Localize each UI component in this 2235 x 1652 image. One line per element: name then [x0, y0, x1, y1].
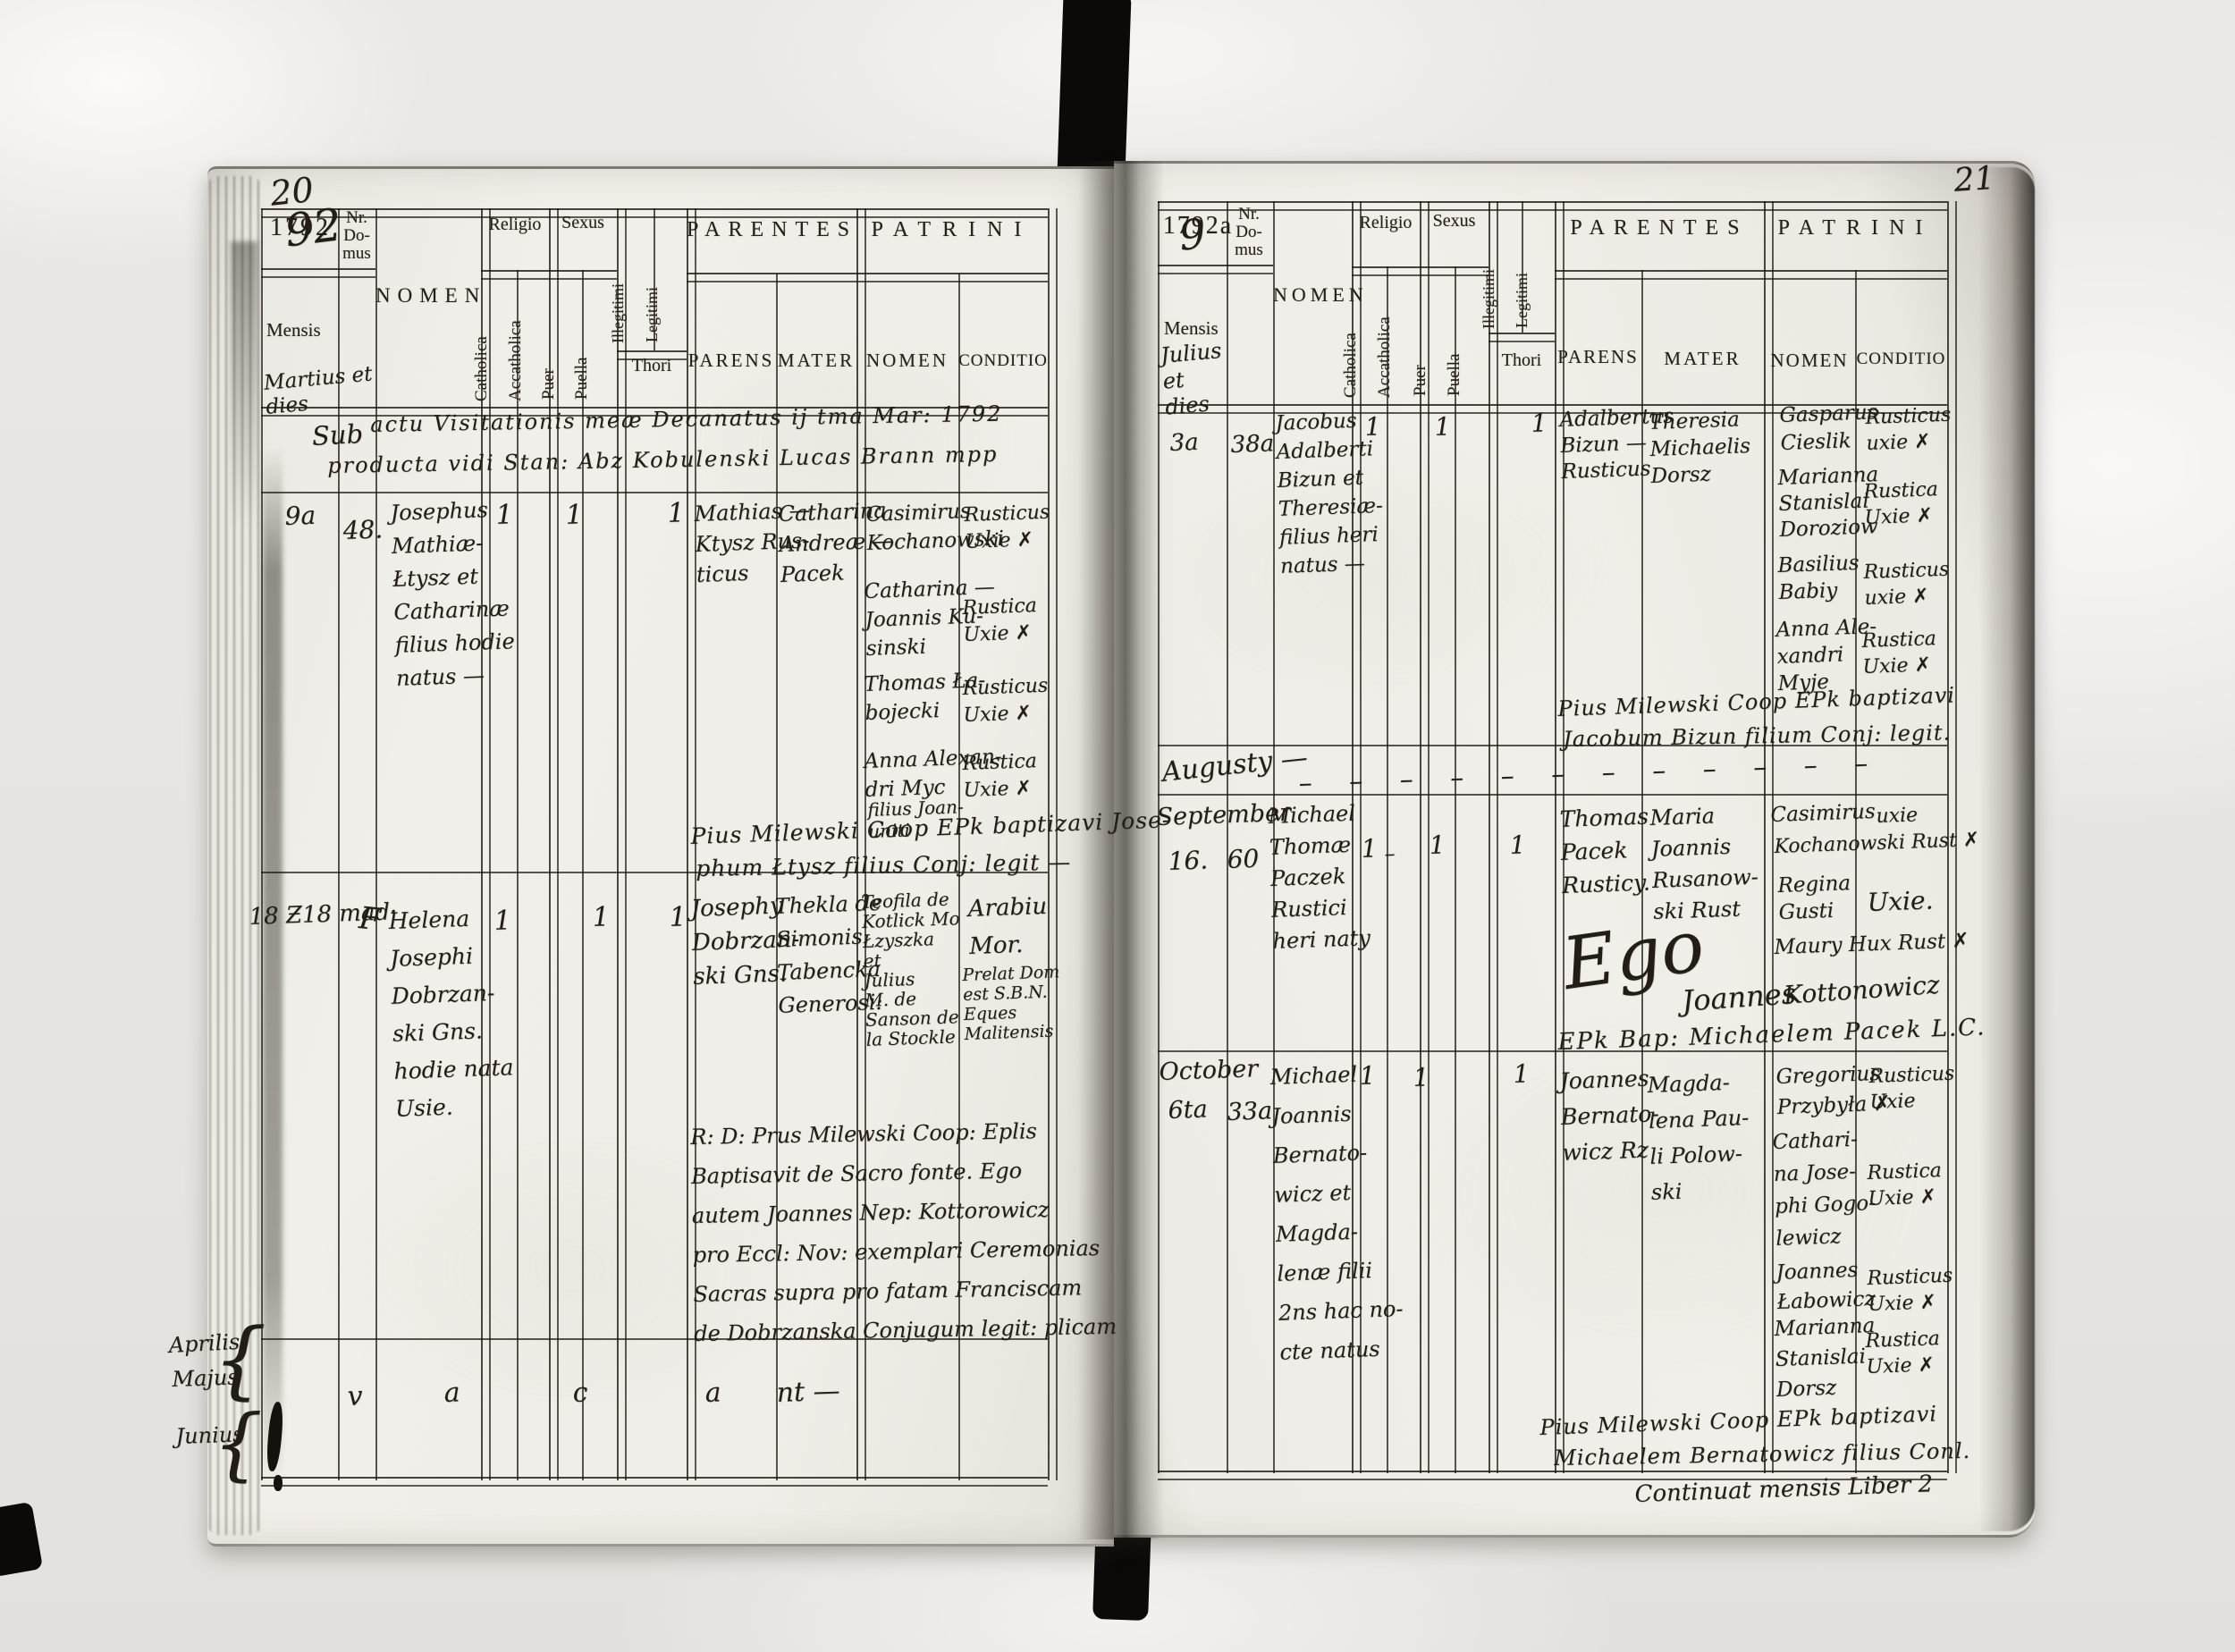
hw-r2-patrinus-1a: Casimirus [1770, 799, 1876, 829]
hw-r3-conditio-3: RusticusUxie ✗ [1867, 1263, 1954, 1318]
hw-left-mensis-note: Martius etdies [263, 362, 375, 419]
hw-r3-dies-day: 6ta [1168, 1094, 1208, 1125]
hw-r2-nomen: MichaelThomæPaczekRusticiheri naty [1268, 797, 1371, 957]
table-rule-horizontal [261, 1477, 1048, 1487]
table-rule-horizontal [1158, 201, 1947, 211]
scanner-backing-top [1057, 0, 1131, 176]
illegitimi-header-right: Illegitimi [1480, 269, 1497, 329]
hw-r3-mater: Magda-lena Pau-li Polow-ski [1647, 1064, 1752, 1210]
hw-l1-nr-domus: 48. [342, 513, 384, 546]
table-rule-vertical [1158, 201, 1160, 1473]
hw-left-year-overlay: 92 [282, 197, 345, 259]
hw-r1-patrinus-3: BasiliusBabiy [1777, 550, 1860, 606]
legitimi-header-left: Legitimi [644, 287, 660, 342]
hw-l1-conditio-1: RusticusUxie ✗ [964, 500, 1051, 556]
parens-header-right: PARENS [1555, 347, 1641, 367]
hw-r3-legitimi-mark: 1 [1513, 1058, 1530, 1090]
hw-left-vacant-a1: a [443, 1376, 460, 1410]
hw-r1-nr-domus: 38a [1230, 429, 1275, 459]
hw-r1-conditio-3: Rusticusuxie ✗ [1863, 557, 1951, 611]
hw-left-vacant-nt: nt — [776, 1375, 840, 1411]
conditio-header-left: CONDITIO [958, 352, 1048, 371]
religio-header-right: Religio [1352, 213, 1420, 232]
hw-left-visitation-sub: Sub [311, 417, 364, 452]
hw-right-page-number: 21 [1952, 158, 1996, 201]
parens-header-left: PARENS [687, 350, 776, 371]
hw-r2-nr-domus: 60 [1227, 843, 1260, 875]
hw-r1-conditio-1: Rusticusuxie ✗ [1865, 402, 1952, 457]
hw-r1-conditio-4: RusticaUxie ✗ [1861, 626, 1937, 680]
table-rule-horizontal [687, 273, 1048, 282]
hw-l1-catholica-mark: 1 [495, 498, 513, 532]
nr-domus-header-right: Nr. Do- mus [1227, 206, 1271, 259]
table-rule-horizontal [261, 208, 1048, 218]
hw-l2-puella-mark: 1 [592, 900, 610, 934]
hw-l2-conditio-a: ArabiuMor. [967, 888, 1049, 965]
puella-header-left: Puella [573, 358, 590, 400]
hw-r3-puer-mark: 1 [1413, 1061, 1430, 1093]
register-scan: 1792 Nr. Do- mus NOMEN Religio Sexus Cat… [0, 0, 2235, 1652]
hw-r1-conditio-2: RusticaUxie ✗ [1863, 476, 1939, 531]
hw-l2-legitimi-mark: 1 [669, 900, 687, 934]
table-rule-vertical [617, 208, 627, 1480]
hw-l1-conditio-3: RusticusUxie ✗ [962, 673, 1050, 729]
hw-r3-parens: JoannesBernato-wicz Rz [1559, 1060, 1661, 1171]
hw-right-year-overlay: 9 [1177, 208, 1208, 262]
hw-r2-conditio-1: uxie [1876, 803, 1919, 829]
hw-l2-baptism-note: R: D: Prus Milewski Coop: EplisBaptisavi… [690, 1110, 1117, 1353]
hw-r3-patrinus-3: JoannesŁabowicz [1775, 1255, 1876, 1318]
nr-line: mus [1227, 241, 1271, 259]
hw-r1-dies: 3a [1169, 428, 1199, 459]
hw-r3-conditio-1: RusticusUxie [1868, 1061, 1956, 1116]
table-rule-horizontal [1158, 794, 1947, 796]
hw-left-brace-2: { [213, 1395, 263, 1493]
nr-line: Nr. [338, 209, 375, 227]
table-rule-vertical [1489, 201, 1498, 1473]
puer-header-left: Puer [540, 368, 557, 400]
hw-l2-conditio-b: Prelat Domest S.B.N.EquesMalitensis [962, 962, 1062, 1044]
patrini-nomen-header-right: NOMEN [1764, 350, 1855, 371]
thori-header-right: Thori [1489, 350, 1555, 370]
hw-l1-legitimi-mark: 1 [667, 496, 685, 530]
table-rule-horizontal [261, 268, 375, 278]
table-rule-vertical [261, 208, 263, 1480]
mater-header-right: MATER [1641, 349, 1764, 369]
table-rule-horizontal [1158, 265, 1273, 274]
hw-r2-catholica-mark: 1 [1361, 832, 1378, 864]
nomen-header-right: NOMEN [1273, 284, 1352, 306]
parentes-header-right: PARENTES [1555, 216, 1764, 240]
hw-l2-f-mark: F [358, 899, 383, 940]
hw-r3-nr-domus: 33a [1227, 1096, 1273, 1127]
legitimi-header-right: Legitimi [1514, 273, 1530, 328]
nr-line: Do- [1227, 223, 1271, 241]
hw-r3-patrinus-2: Cathari-na Jose-phi Gogo-lewicz [1772, 1123, 1877, 1255]
table-rule-vertical [375, 208, 377, 1480]
religio-header-left: Religio [481, 215, 549, 234]
patrini-header-right: PATRINI [1764, 216, 1947, 240]
table-rule-horizontal [1555, 270, 1947, 280]
hw-r3-conditio-4: RusticaUxie ✗ [1865, 1326, 1941, 1380]
mensis-header-left: Mensis [266, 320, 338, 341]
accatholica-header-left: Accatholica [507, 320, 524, 401]
nr-line: Nr. [1227, 206, 1271, 223]
mater-header-left: MATER [776, 350, 856, 371]
hw-r2-patrinus-2: ReginaGusti [1777, 870, 1852, 926]
hw-left-vacant-c: c [572, 1376, 588, 1410]
hw-l1-conditio-2: RusticaUxie ✗ [962, 593, 1038, 649]
patrini-header-left: PATRINI [856, 218, 1048, 241]
catholica-header-right: Catholica [1342, 333, 1359, 398]
table-rule-horizontal [481, 270, 617, 280]
thori-header-left: Thori [617, 356, 687, 375]
table-rule-horizontal [1489, 333, 1555, 342]
table-rule-horizontal [1352, 266, 1489, 276]
hw-r3-dies-month: October [1159, 1054, 1259, 1088]
accatholica-header-right: Accatholica [1376, 316, 1393, 398]
hw-left-vacant-a2: a [704, 1376, 721, 1410]
table-rule-vertical [1227, 201, 1228, 1473]
hw-r1-catholica-mark: 1 [1364, 410, 1381, 442]
conditio-header-right: CONDITIO [1855, 350, 1947, 369]
hw-r2-accatholica-dash: – [1384, 840, 1396, 867]
table-rule-vertical [1455, 266, 1456, 1473]
hw-l2-patrini: Teofila deKotlick MoŁzyszka etJuliusM. d… [861, 889, 965, 1049]
hw-right-mensis-note: Julius etdies [1160, 338, 1227, 421]
hw-l1-dies: 9a [284, 500, 316, 532]
hw-r2-parens: ThomasPacekRusticy. [1559, 800, 1651, 902]
hw-l1-puer-mark: 1 [565, 498, 583, 532]
hw-r2-puer-mark: 1 [1429, 829, 1446, 861]
mensis-header-right: Mensis [1164, 318, 1236, 339]
hw-r2-dies-day: 16. [1168, 844, 1209, 877]
scanner-backing-left [0, 1502, 43, 1578]
hw-r3-conditio-2: RusticaUxie ✗ [1867, 1158, 1943, 1212]
nomen-header-left: NOMEN [375, 284, 481, 307]
binding-grime-top [231, 241, 257, 527]
hw-r3-patrinus-4: MariannaStanislaiDorsz [1774, 1311, 1877, 1405]
hw-left-vacant-v: v [347, 1379, 363, 1413]
hw-r2-legitimi-mark: 1 [1509, 829, 1526, 861]
hw-r2-conditio-2: Uxie. [1867, 884, 1934, 918]
table-rule-vertical [1764, 201, 1774, 1473]
hw-r1-mater: TheresiaMichaelisDorsz [1649, 406, 1752, 490]
hw-r3-catholica-mark: 1 [1359, 1059, 1376, 1091]
table-rule-horizontal [261, 492, 1048, 493]
hw-r1-puer-mark: 1 [1434, 410, 1451, 442]
puer-header-right: Puer [1412, 365, 1429, 396]
illegitimi-header-left: Illegitimi [610, 283, 626, 343]
hw-r3-nomen: MichaelJoannisBernato-wicz etMagda-lenæ … [1269, 1053, 1405, 1372]
patrini-nomen-header-left: NOMEN [856, 350, 958, 371]
sexus-header-left: Sexus [549, 213, 617, 232]
parentes-header-left: PARENTES [687, 218, 856, 241]
hw-l2-catholica-mark: 1 [493, 904, 511, 938]
sexus-header-right: Sexus [1420, 211, 1489, 231]
table-rule-horizontal [1158, 1050, 1947, 1052]
puella-header-right: Puella [1446, 354, 1463, 397]
catholica-header-left: Catholica [473, 336, 490, 401]
hw-l1-conditio-4: RusticaUxie ✗ [962, 748, 1038, 805]
hw-r1-legitimi-mark: 1 [1531, 407, 1548, 439]
nr-domus-header-left: Nr. Do- mus [338, 209, 375, 263]
